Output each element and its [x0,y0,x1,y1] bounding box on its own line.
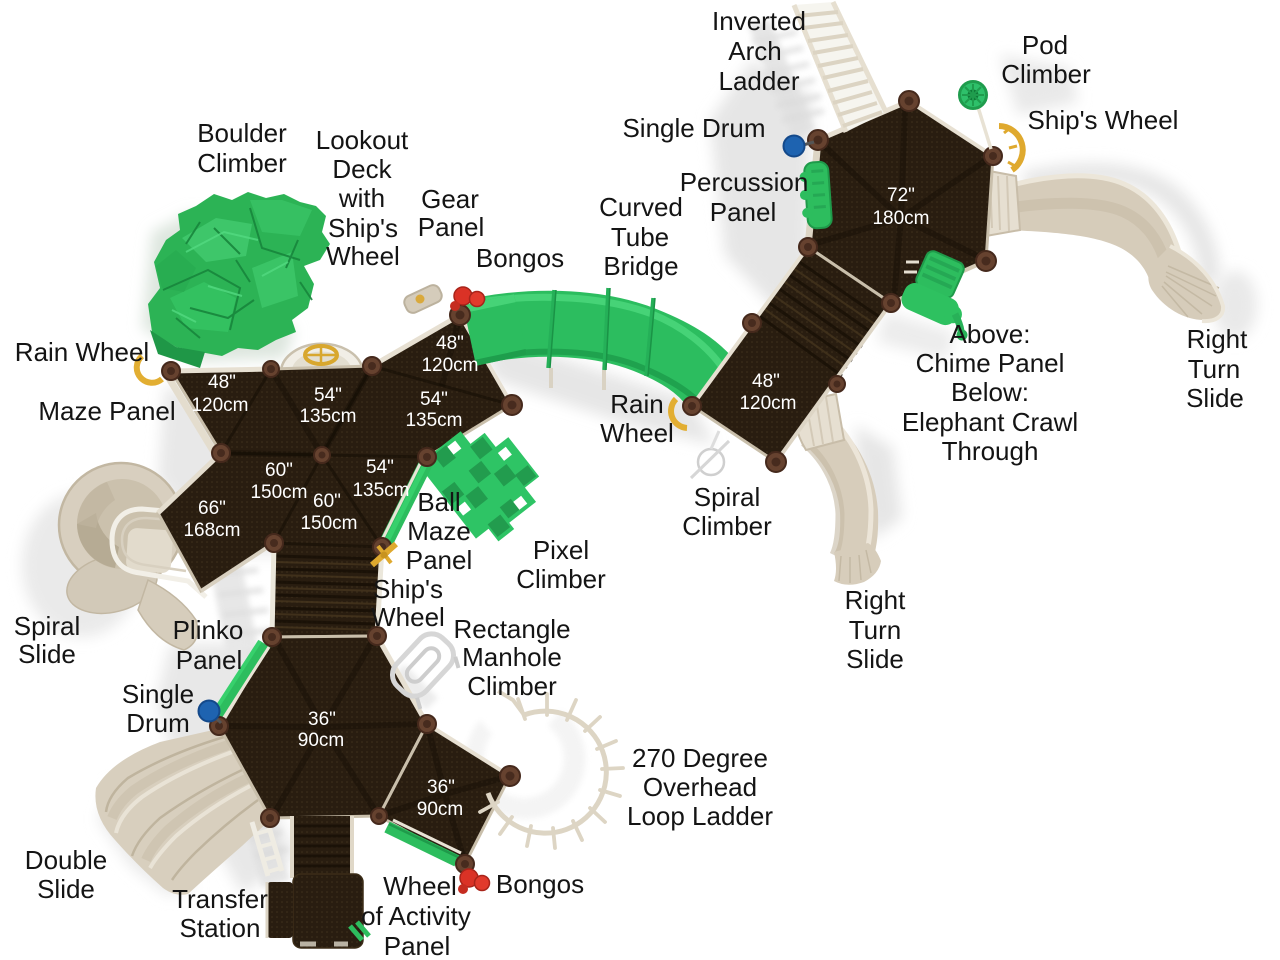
svg-text:Elephant Crawl: Elephant Crawl [902,407,1078,437]
svg-text:Arch: Arch [728,36,781,66]
svg-text:Slide: Slide [846,644,904,674]
svg-text:Wheel: Wheel [600,418,674,448]
svg-text:with: with [338,183,385,213]
svg-text:Station: Station [180,913,261,943]
svg-text:150cm: 150cm [300,513,357,534]
svg-text:Boulder: Boulder [197,118,287,148]
svg-text:Climber: Climber [197,148,287,178]
svg-text:Wheel: Wheel [371,602,445,632]
svg-text:120cm: 120cm [191,395,248,416]
svg-text:Panel: Panel [176,645,243,675]
svg-text:54": 54" [366,457,394,478]
svg-text:Spiral: Spiral [694,482,760,512]
svg-text:54": 54" [314,385,342,406]
svg-text:Climber: Climber [467,671,557,701]
svg-text:Panel: Panel [406,545,473,575]
svg-text:Right: Right [1187,324,1248,354]
svg-text:Above:: Above: [950,319,1031,349]
svg-text:Rain Wheel: Rain Wheel [15,337,149,367]
svg-text:Ship's: Ship's [328,213,398,243]
svg-text:54": 54" [420,389,448,410]
svg-text:Plinko: Plinko [173,615,244,645]
svg-text:168cm: 168cm [183,520,240,541]
svg-text:Bongos: Bongos [496,869,584,899]
svg-text:Rain: Rain [610,389,663,419]
svg-text:135cm: 135cm [299,406,356,427]
svg-text:Single: Single [122,679,194,709]
svg-text:Loop Ladder: Loop Ladder [627,801,773,831]
svg-text:Panel: Panel [418,212,485,242]
svg-text:Turn: Turn [1188,354,1241,384]
svg-text:Rectangle: Rectangle [453,614,570,644]
svg-text:Through: Through [942,436,1039,466]
svg-text:Curved: Curved [599,192,683,222]
svg-text:135cm: 135cm [405,410,462,431]
svg-text:Wheel: Wheel [326,241,400,271]
svg-text:60": 60" [265,460,293,481]
svg-text:36": 36" [308,709,336,730]
svg-text:120cm: 120cm [421,355,478,376]
svg-text:135cm: 135cm [352,480,409,501]
svg-text:48": 48" [208,372,236,393]
svg-text:90cm: 90cm [417,799,463,820]
svg-text:Gear: Gear [421,184,479,214]
svg-text:Wheel: Wheel [383,871,457,901]
svg-text:Inverted: Inverted [712,6,806,36]
svg-text:150cm: 150cm [250,482,307,503]
svg-text:Maze Panel: Maze Panel [38,396,175,426]
svg-text:66": 66" [198,498,226,519]
svg-text:Climber: Climber [1001,59,1091,89]
svg-text:Manhole: Manhole [462,642,562,672]
svg-text:Ball: Ball [417,487,460,517]
svg-text:Chime Panel: Chime Panel [916,348,1065,378]
svg-text:Below:: Below: [951,377,1029,407]
svg-text:Lookout: Lookout [316,125,409,155]
svg-text:Slide: Slide [37,874,95,904]
svg-text:90cm: 90cm [298,730,344,751]
svg-text:Maze: Maze [407,516,471,546]
svg-text:Tube: Tube [611,222,669,252]
svg-text:Slide: Slide [18,639,76,669]
svg-text:Ship's Wheel: Ship's Wheel [1028,105,1179,135]
svg-text:270 Degree: 270 Degree [632,743,768,773]
svg-text:180cm: 180cm [872,208,929,229]
svg-text:Climber: Climber [516,564,606,594]
svg-text:Bridge: Bridge [603,251,678,281]
svg-text:Double: Double [25,845,107,875]
svg-text:Turn: Turn [849,615,902,645]
svg-text:Climber: Climber [682,511,772,541]
svg-text:Single Drum: Single Drum [622,113,765,143]
svg-text:Panel: Panel [710,197,777,227]
svg-text:48": 48" [752,371,780,392]
svg-text:Pixel: Pixel [533,535,589,565]
svg-text:Ladder: Ladder [719,66,800,96]
svg-text:Percussion: Percussion [680,167,809,197]
svg-text:36": 36" [427,777,455,798]
svg-text:Bongos: Bongos [476,243,564,273]
svg-text:Spiral: Spiral [14,611,80,641]
svg-text:Transfer: Transfer [172,884,268,914]
svg-text:Pod: Pod [1022,30,1068,60]
svg-text:of Activity: of Activity [361,901,471,931]
svg-text:Ship's: Ship's [373,574,443,604]
svg-text:120cm: 120cm [739,393,796,414]
svg-text:48": 48" [436,333,464,354]
svg-text:Deck: Deck [332,154,392,184]
svg-text:Drum: Drum [126,708,190,738]
svg-text:72": 72" [887,185,915,206]
svg-text:Panel: Panel [384,931,451,960]
svg-text:Overhead: Overhead [643,772,757,802]
svg-text:Slide: Slide [1186,383,1244,413]
svg-text:Right: Right [845,585,906,615]
svg-text:60": 60" [313,491,341,512]
